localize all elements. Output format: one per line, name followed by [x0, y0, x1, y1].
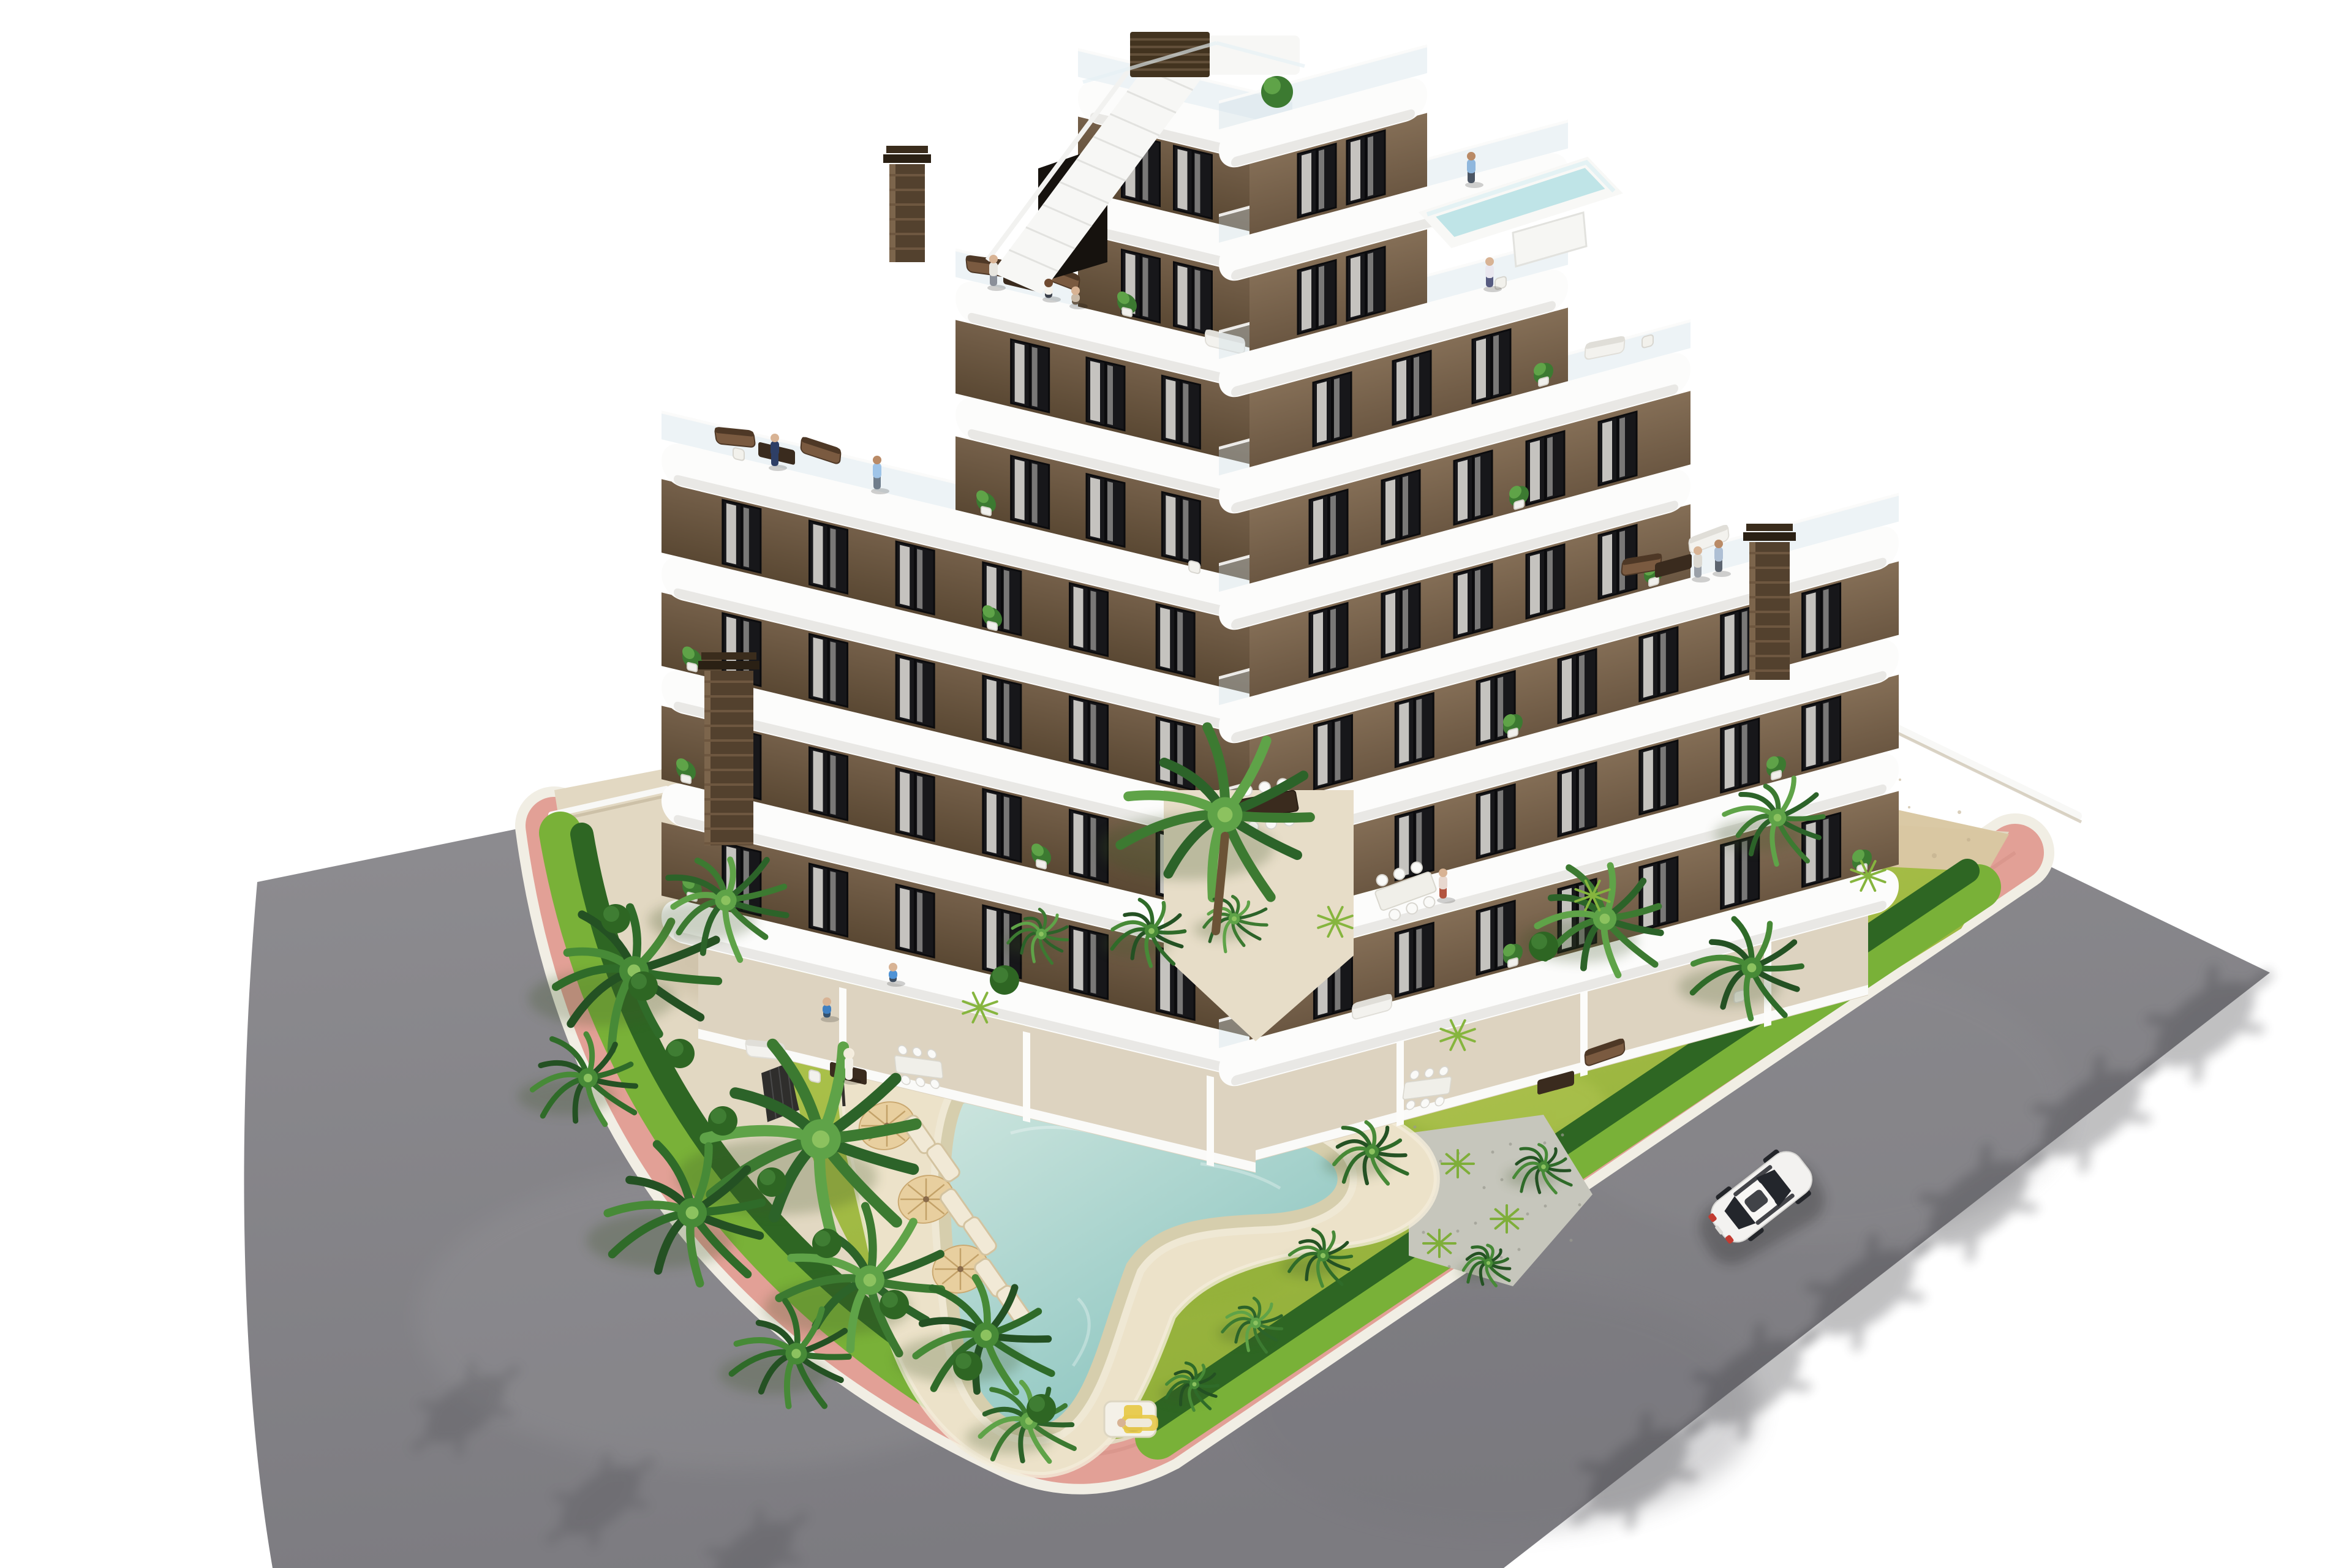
- render-canvas: [0, 0, 2352, 1568]
- chimney: [883, 146, 931, 262]
- terrace-furniture: [733, 447, 744, 461]
- building-layer: [661, 0, 1899, 1196]
- agave-plant: [1423, 1230, 1455, 1257]
- person: [1117, 1415, 1158, 1431]
- chimney: [698, 652, 759, 845]
- left-wing: [661, 0, 1292, 1196]
- terrace-furniture: [809, 1069, 820, 1083]
- terrace-furniture: [1189, 560, 1200, 574]
- agave-plant: [1491, 1205, 1523, 1232]
- aerial-render-svg: [0, 0, 2352, 1568]
- chimney: [1743, 524, 1796, 680]
- terrace-furniture: [715, 428, 756, 448]
- agave-plant: [1442, 1150, 1474, 1177]
